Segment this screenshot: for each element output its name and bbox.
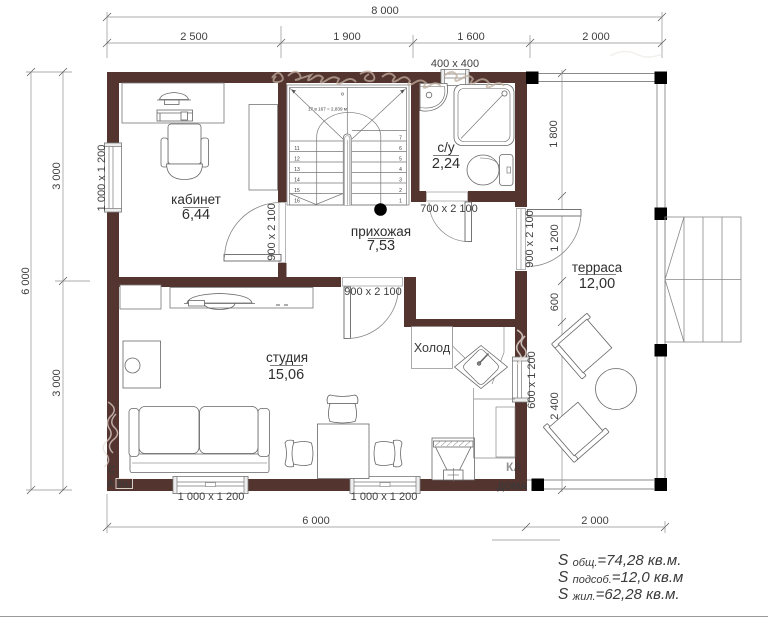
svg-text:900 x 2 100: 900 x 2 100 bbox=[266, 203, 278, 261]
svg-text:12: 12 bbox=[294, 157, 300, 163]
svg-text:1 900: 1 900 bbox=[333, 31, 361, 43]
svg-text:400 x 400: 400 x 400 bbox=[431, 58, 479, 70]
svg-text:3: 3 bbox=[399, 178, 402, 184]
svg-text:3 000: 3 000 bbox=[51, 162, 63, 190]
svg-text:6: 6 bbox=[399, 146, 402, 152]
svg-text:15: 15 bbox=[294, 188, 300, 194]
svg-text:6 000: 6 000 bbox=[20, 267, 32, 295]
svg-text:6 000: 6 000 bbox=[302, 515, 330, 527]
svg-text:RU: RU bbox=[118, 480, 132, 491]
svg-text:17 в 167 = 2,839 м: 17 в 167 = 2,839 м bbox=[308, 107, 347, 112]
svg-text:600 x 1 200: 600 x 1 200 bbox=[526, 351, 538, 409]
svg-text:4: 4 bbox=[399, 167, 402, 173]
svg-text:2 500: 2 500 bbox=[180, 31, 208, 43]
svg-text:16: 16 bbox=[294, 199, 300, 205]
svg-text:700 x 2 100: 700 x 2 100 bbox=[420, 203, 478, 215]
svg-text:2 400: 2 400 bbox=[549, 392, 561, 420]
svg-text:с/у: с/у bbox=[437, 140, 455, 155]
svg-text:3 000: 3 000 bbox=[51, 369, 63, 397]
svg-text:900 x 2 100: 900 x 2 100 bbox=[344, 286, 402, 298]
svg-text:2 000: 2 000 bbox=[581, 515, 609, 527]
svg-text:15,06: 15,06 bbox=[268, 367, 304, 383]
svg-text:6,44: 6,44 bbox=[182, 207, 210, 223]
svg-text:2: 2 bbox=[399, 188, 402, 194]
svg-text:студия: студия bbox=[266, 350, 308, 365]
svg-text:С: С bbox=[108, 465, 115, 476]
svg-text:600: 600 bbox=[549, 293, 561, 311]
svg-text:ДОМА: ДОМА bbox=[497, 482, 527, 493]
svg-text:12,00: 12,00 bbox=[579, 276, 615, 292]
svg-text:8 000: 8 000 bbox=[371, 5, 399, 17]
svg-text:1 600: 1 600 bbox=[457, 31, 485, 43]
svg-text:1 200: 1 200 bbox=[549, 224, 561, 252]
svg-text:2,24: 2,24 bbox=[432, 156, 460, 172]
svg-text:7: 7 bbox=[399, 136, 402, 142]
svg-text:1 000 x 1 200: 1 000 x 1 200 bbox=[96, 145, 108, 212]
svg-text:5: 5 bbox=[399, 157, 402, 163]
svg-text:1: 1 bbox=[399, 199, 402, 205]
svg-text:1 000 x 1 200: 1 000 x 1 200 bbox=[178, 491, 245, 503]
svg-text:КА: КА bbox=[506, 460, 522, 474]
svg-text:11: 11 bbox=[294, 146, 299, 152]
svg-text:7,53: 7,53 bbox=[367, 238, 395, 254]
svg-text:А: А bbox=[107, 479, 114, 490]
svg-text:14: 14 bbox=[294, 178, 300, 184]
svg-text:терраса: терраса bbox=[572, 260, 623, 275]
svg-text:1 800: 1 800 bbox=[548, 120, 560, 148]
svg-text:Холод: Холод bbox=[414, 341, 451, 355]
svg-text:кабинет: кабинет bbox=[171, 192, 221, 207]
svg-text:900 x 2 100: 900 x 2 100 bbox=[524, 210, 536, 268]
svg-text:2 000: 2 000 bbox=[582, 31, 610, 43]
svg-text:прихожая: прихожая bbox=[351, 224, 411, 239]
svg-text:13: 13 bbox=[294, 167, 300, 173]
svg-text:1 000 x 1 200: 1 000 x 1 200 bbox=[351, 491, 418, 503]
